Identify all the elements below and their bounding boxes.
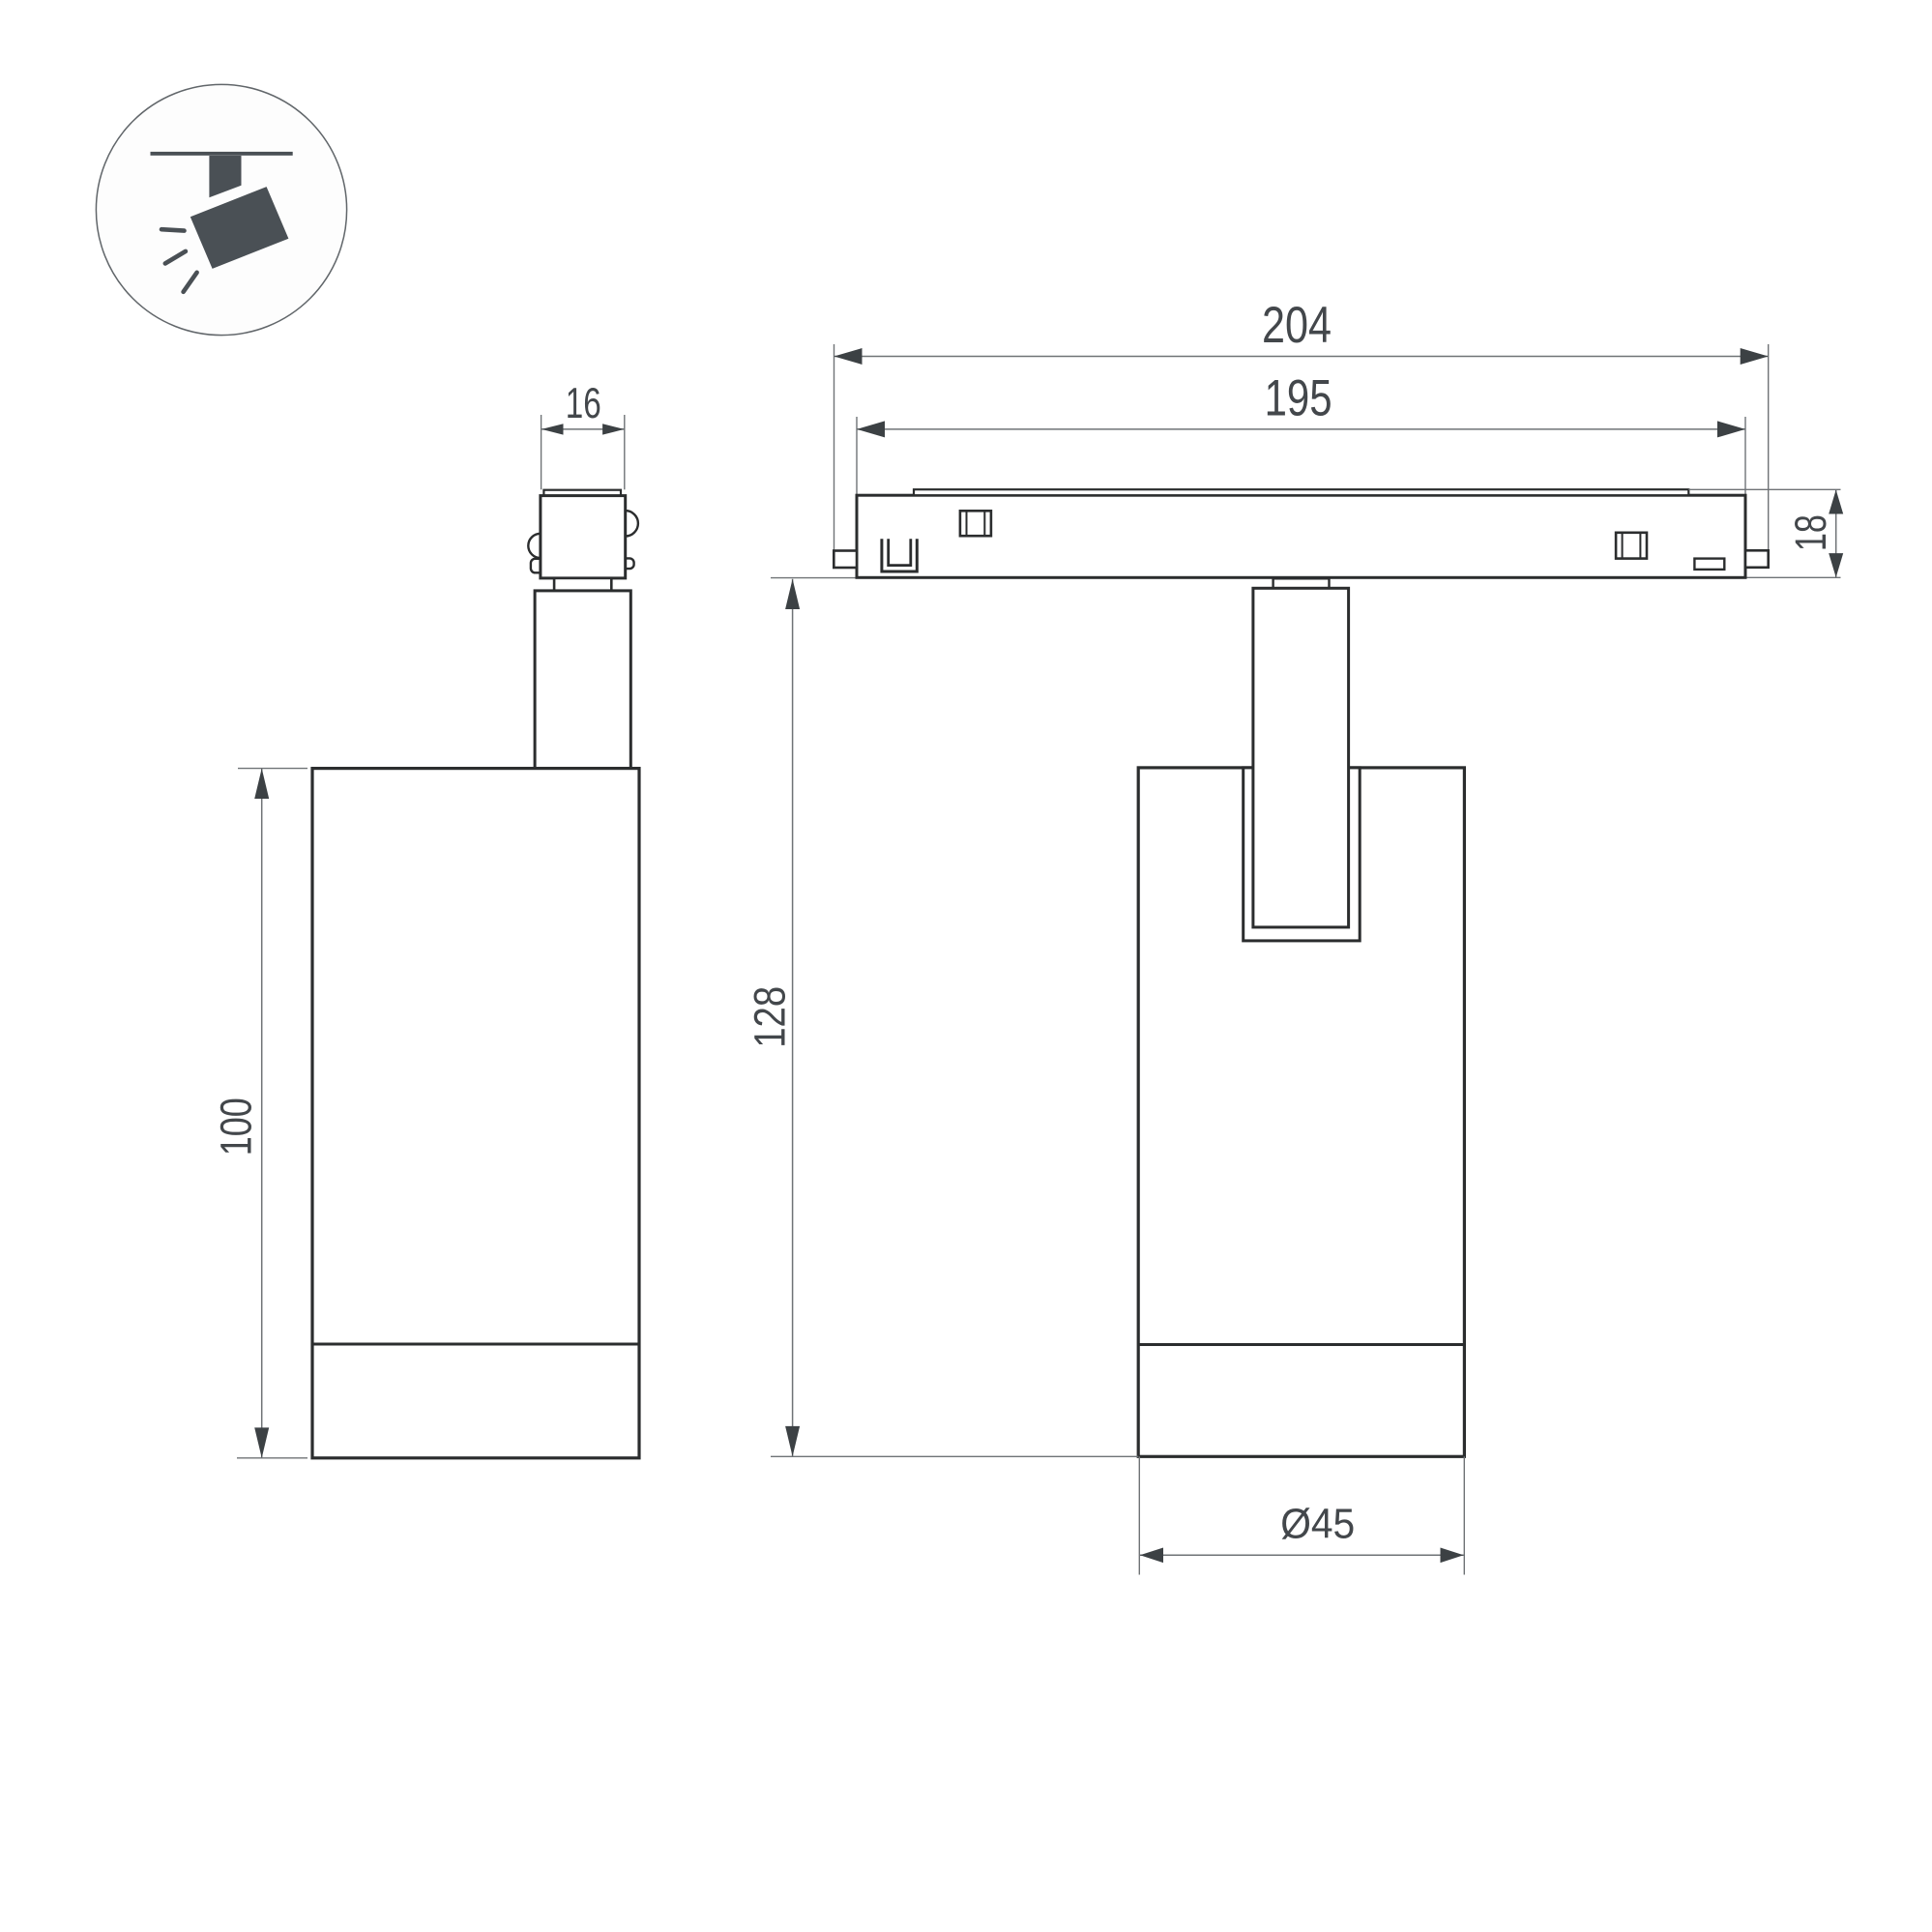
svg-text:Ø45: Ø45 (1280, 1502, 1355, 1548)
svg-text:204: 204 (1262, 297, 1332, 354)
svg-text:100: 100 (211, 1098, 260, 1156)
svg-text:16: 16 (566, 378, 601, 427)
svg-text:128: 128 (746, 986, 795, 1048)
svg-text:18: 18 (1786, 514, 1835, 551)
svg-text:195: 195 (1265, 369, 1332, 426)
